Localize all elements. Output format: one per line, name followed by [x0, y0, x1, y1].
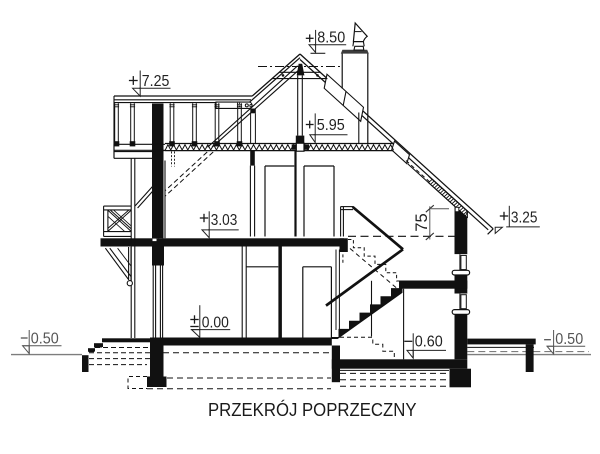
- svg-text:5.95: 5.95: [317, 117, 345, 134]
- svg-text:7.25: 7.25: [142, 73, 170, 90]
- svg-text:0.50: 0.50: [31, 331, 59, 348]
- svg-text:PRZEKRÓJ POPRZECZNY: PRZEKRÓJ POPRZECZNY: [208, 399, 417, 420]
- svg-text:8.50: 8.50: [317, 30, 345, 47]
- svg-text:0.60: 0.60: [415, 334, 443, 351]
- svg-text:3.03: 3.03: [211, 212, 238, 229]
- svg-text:0.50: 0.50: [555, 331, 583, 348]
- svg-text:0.00: 0.00: [202, 314, 229, 331]
- svg-text:3.25: 3.25: [511, 210, 538, 227]
- svg-text:75: 75: [413, 213, 431, 231]
